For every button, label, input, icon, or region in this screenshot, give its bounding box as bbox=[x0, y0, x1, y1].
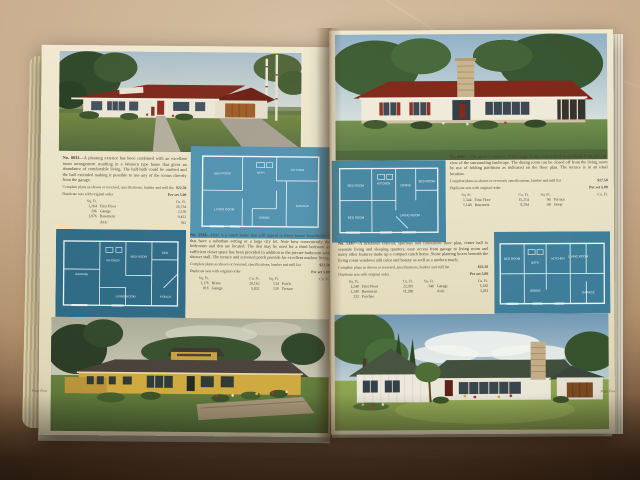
price-value: Per set 5.00 bbox=[168, 193, 187, 198]
price-value: $17.50 bbox=[597, 178, 607, 183]
room-label: BED ROOM bbox=[214, 171, 231, 175]
page-number-label: Page Five bbox=[599, 389, 617, 393]
table-body: 1,344First Floor15,21496Terrace1,148Base… bbox=[450, 197, 608, 208]
plan-description: No. 5144—Here is a ranch home that will … bbox=[190, 232, 330, 261]
price-label: Duplicate sets with original order bbox=[62, 192, 113, 196]
left-page: No. 8832—A pleasing exterior has been co… bbox=[38, 45, 333, 438]
table-cell bbox=[310, 287, 329, 292]
table-cell: 232 bbox=[338, 295, 359, 300]
room-label: BED ROOM bbox=[348, 184, 365, 188]
plan-number: No. 8832— bbox=[63, 155, 84, 160]
price-line: $22.50 Complete plans as shown or revers… bbox=[62, 185, 186, 191]
table-body: 1,176Home20,162134Porch816Garage5,832120… bbox=[190, 281, 330, 292]
room-label: KITCHEN bbox=[377, 181, 390, 185]
price-label: Complete plans as shown or reversed, spe… bbox=[190, 262, 301, 267]
price-value: Per set 5.00 bbox=[589, 185, 608, 190]
room-label: GARAGE bbox=[582, 290, 595, 294]
room-label: DEN bbox=[162, 251, 168, 255]
duplicate-line: Per set 5.00 Duplicate sets with origina… bbox=[62, 192, 186, 198]
area-table: Sq. Ft.Cu. Ft.Sq. Ft.Cu. Ft. 1,176Home20… bbox=[190, 276, 330, 293]
room-label: PORCH bbox=[160, 295, 171, 299]
plan-5144-text-block: No. 5144—Here is a ranch home that will … bbox=[189, 232, 330, 317]
table-cell: 816 bbox=[190, 286, 209, 291]
room-label: BATH bbox=[257, 171, 265, 175]
room-label: KITCHEN bbox=[552, 257, 565, 261]
table-cell bbox=[393, 294, 414, 299]
page-number-label: Page Four bbox=[31, 389, 49, 393]
duplicate-line: Per set 5.00 Duplicate sets with origina… bbox=[450, 185, 608, 190]
room-label: BED ROOM bbox=[504, 257, 521, 261]
table-cell: Porches bbox=[359, 294, 393, 299]
figure bbox=[151, 107, 154, 116]
table-cell: Stoop bbox=[551, 202, 587, 207]
floor-plan-blueprint-5144: GARAGE KITCHEN BED ROOM LIVING ROOM DEN … bbox=[55, 229, 186, 318]
room-label: GARAGE bbox=[296, 204, 309, 208]
price-value: $22.50 bbox=[478, 264, 488, 269]
table-cell: Attic bbox=[97, 220, 152, 226]
price-label: Complete plans as shown or reversed, spe… bbox=[450, 178, 561, 183]
table-cell bbox=[413, 294, 434, 299]
table-cell: Terrace bbox=[279, 287, 311, 292]
house-illustration-8832 bbox=[59, 51, 302, 153]
price-line: $22.50 Complete plans as shown or revers… bbox=[190, 262, 330, 268]
room-label: DINING bbox=[530, 289, 541, 293]
price-label: Complete plans as shown or reversed, spe… bbox=[338, 265, 449, 270]
table-cell: Basement bbox=[472, 203, 508, 208]
garage-door bbox=[225, 103, 255, 117]
photo-of-open-catalog: No. 8832—A pleasing exterior has been co… bbox=[0, 0, 640, 480]
house-illustration-5147 bbox=[334, 313, 609, 430]
price-value: Per set 5.00 bbox=[311, 270, 330, 275]
price-line: $17.50 Complete plans as shown or revers… bbox=[450, 178, 608, 183]
room-label: BATH bbox=[531, 261, 539, 265]
table-cell bbox=[62, 220, 97, 225]
duplicate-line: Per set 5.00 Duplicate sets with origina… bbox=[338, 271, 488, 276]
area-table: Sq. Ft.Cu. Ft.Sq. Ft.Cu. Ft. 1,240First … bbox=[338, 279, 488, 300]
plan-description-text: The picture windows in this large living… bbox=[450, 153, 608, 175]
plan-description: No. 8805—The picture windows in this lar… bbox=[450, 153, 608, 176]
price-value: $22.50 bbox=[319, 263, 329, 268]
table-cell bbox=[586, 202, 608, 207]
door bbox=[187, 376, 195, 391]
area-table: Sq. Ft.Cu. Ft.Sq. Ft.Cu. Ft. 1,344First … bbox=[450, 192, 608, 208]
room-label: BED ROOM bbox=[131, 255, 148, 259]
room-label: KITCHEN bbox=[106, 258, 119, 262]
plan-number: No. 5147— bbox=[338, 241, 359, 246]
price-line: $22.50 Complete plans as shown or revers… bbox=[338, 264, 488, 269]
table-cell: 9,294 bbox=[507, 203, 529, 208]
right-page: BED ROOM KITCHEN DINING BED ROOM BED ROO… bbox=[329, 29, 615, 434]
room-label: LIVING ROOM bbox=[568, 254, 589, 258]
room-label: DINING bbox=[259, 216, 270, 220]
window-band bbox=[459, 382, 521, 394]
plan-description: No. 8832—A pleasing exterior has been co… bbox=[63, 155, 187, 184]
front-door bbox=[459, 104, 465, 118]
floor-plan-blueprint-8832: BED ROOM BATH KITCHEN LIVING ROOM DINING… bbox=[190, 146, 331, 239]
price-label: Duplicate sets with original order bbox=[450, 185, 501, 189]
table-row: 816Garage5,832120Terrace bbox=[190, 286, 330, 292]
room-label: BED ROOM bbox=[348, 216, 365, 220]
table-cell: 1,148 bbox=[450, 203, 472, 208]
duplicate-line: Per set 5.00 Duplicate sets with origina… bbox=[190, 269, 330, 275]
room-label: LIVING ROOM bbox=[400, 213, 421, 217]
price-value: Per set 5.00 bbox=[470, 271, 489, 276]
table-cell: Garage bbox=[209, 287, 241, 292]
table-row: 232Porches bbox=[338, 294, 488, 300]
room-label: GARAGE bbox=[75, 272, 88, 276]
plan-8805-text-block: No. 8805—The picture windows in this lar… bbox=[450, 153, 608, 238]
price-label: Duplicate sets with original order bbox=[338, 272, 389, 276]
price-label: Duplicate sets with original order bbox=[190, 269, 241, 273]
room-label: LIVING ROOM bbox=[115, 294, 136, 298]
price-label: Complete plans as shown or reversed, spe… bbox=[62, 185, 173, 190]
table-row: 1,148Basement9,29448Stoop bbox=[450, 202, 608, 208]
area-table: Sq. Ft.Cu. Ft. 1,264First Floor20,734296… bbox=[62, 199, 186, 226]
room-label: BED ROOM bbox=[419, 179, 436, 183]
table-cell: 782 bbox=[152, 220, 187, 225]
room-label: LIVING ROOM bbox=[214, 207, 235, 211]
house-illustration-8805 bbox=[335, 33, 608, 160]
table-cell: 120 bbox=[260, 287, 279, 292]
front-door bbox=[157, 101, 164, 115]
plan-description-text: A luxurious exterior, spacious and conve… bbox=[338, 240, 488, 262]
floor-plan-blueprint-5147: BED ROOM BATH KITCHEN DINING LIVING ROOM… bbox=[494, 231, 610, 314]
plan-number: No. 5144— bbox=[190, 232, 211, 237]
table-row: Attic782 bbox=[62, 220, 186, 226]
plan-description: No. 5147—A luxurious exterior, spacious … bbox=[338, 240, 488, 263]
table-body: 1,264First Floor20,734296Garage2,3781,07… bbox=[62, 204, 186, 226]
table-body: 1,240First Floor22,391346Garage5,1821,24… bbox=[338, 284, 488, 300]
price-value: $22.50 bbox=[176, 186, 186, 191]
table-cell: 5,832 bbox=[240, 287, 259, 292]
blueprint-background bbox=[332, 160, 446, 243]
room-label: DINING bbox=[400, 183, 411, 187]
house-illustration-5144 bbox=[50, 317, 329, 433]
table-cell bbox=[468, 294, 489, 299]
front-door bbox=[445, 380, 453, 396]
room-label: KITCHEN bbox=[291, 168, 304, 172]
floor-plan-blueprint-8805: BED ROOM KITCHEN DINING BED ROOM BED ROO… bbox=[332, 160, 446, 243]
plan-number: No. 8805— bbox=[450, 154, 470, 159]
open-catalog-book: No. 8832—A pleasing exterior has been co… bbox=[28, 28, 624, 448]
table-cell: 48 bbox=[529, 202, 551, 207]
table-cell bbox=[434, 294, 468, 299]
plan-description-text: Here is a ranch home that will appeal to… bbox=[190, 232, 330, 260]
